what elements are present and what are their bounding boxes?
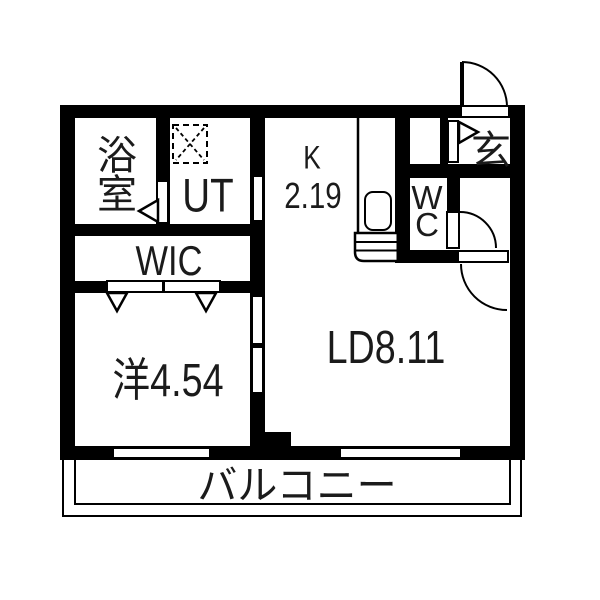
entrance-label: 玄 <box>471 118 511 176</box>
closet-label: WIC <box>136 237 203 285</box>
closet-door-direction-icon-left <box>107 293 127 311</box>
toilet-door <box>446 211 460 249</box>
kitchen-counter-base <box>355 233 397 261</box>
utility-kitchen-door <box>252 175 264 222</box>
wall-partition-foot <box>265 432 291 448</box>
bedroom-sliding-panel-bottom <box>251 346 264 394</box>
balcony-label: バルコニー <box>197 453 396 511</box>
washer-space-cross-2 <box>176 128 204 160</box>
wall-center-partition <box>250 118 265 450</box>
wall-hall-bottom <box>395 250 458 263</box>
toilet-label: W C <box>411 184 442 238</box>
toilet-door-swing-arc <box>460 212 496 248</box>
bathroom-door <box>156 180 169 224</box>
kitchen-label: K <box>303 140 321 177</box>
wall-below-bathroom-utility <box>60 224 265 236</box>
living-label: LD8.11 <box>327 320 446 374</box>
bedroom-sliding-panel-top <box>251 295 264 345</box>
closet-door-direction-icon-right <box>196 293 216 311</box>
bedroom-label: 洋4.54 <box>112 344 223 410</box>
entry-door-swing-arc <box>462 62 507 107</box>
kitchen-area-label: 2.19 <box>284 175 341 217</box>
utility-label: UT <box>182 168 233 223</box>
bathroom-label-char-1: 浴 <box>97 137 137 176</box>
toilet-label-char-2: C <box>411 211 442 238</box>
kitchen-sink-icon <box>365 192 391 230</box>
wall-top <box>60 105 461 118</box>
entry-door-opening <box>460 105 510 118</box>
living-door-swing-arc <box>461 264 507 310</box>
bathroom-label: 浴 室 <box>97 137 137 215</box>
bathroom-label-char-2: 室 <box>97 176 137 215</box>
wall-kitchen-right <box>395 118 410 263</box>
entrance-hall-door <box>447 120 459 163</box>
wall-right <box>510 105 525 460</box>
washer-space-cross-1 <box>176 128 204 160</box>
bedroom-window <box>112 447 211 459</box>
washer-space-icon <box>173 125 207 163</box>
living-hall-door-opening <box>457 250 509 263</box>
floor-plan: 浴 室 UT K 2.19 玄 W C WIC 洋4.54 LD8.11 バルコ… <box>0 0 600 600</box>
